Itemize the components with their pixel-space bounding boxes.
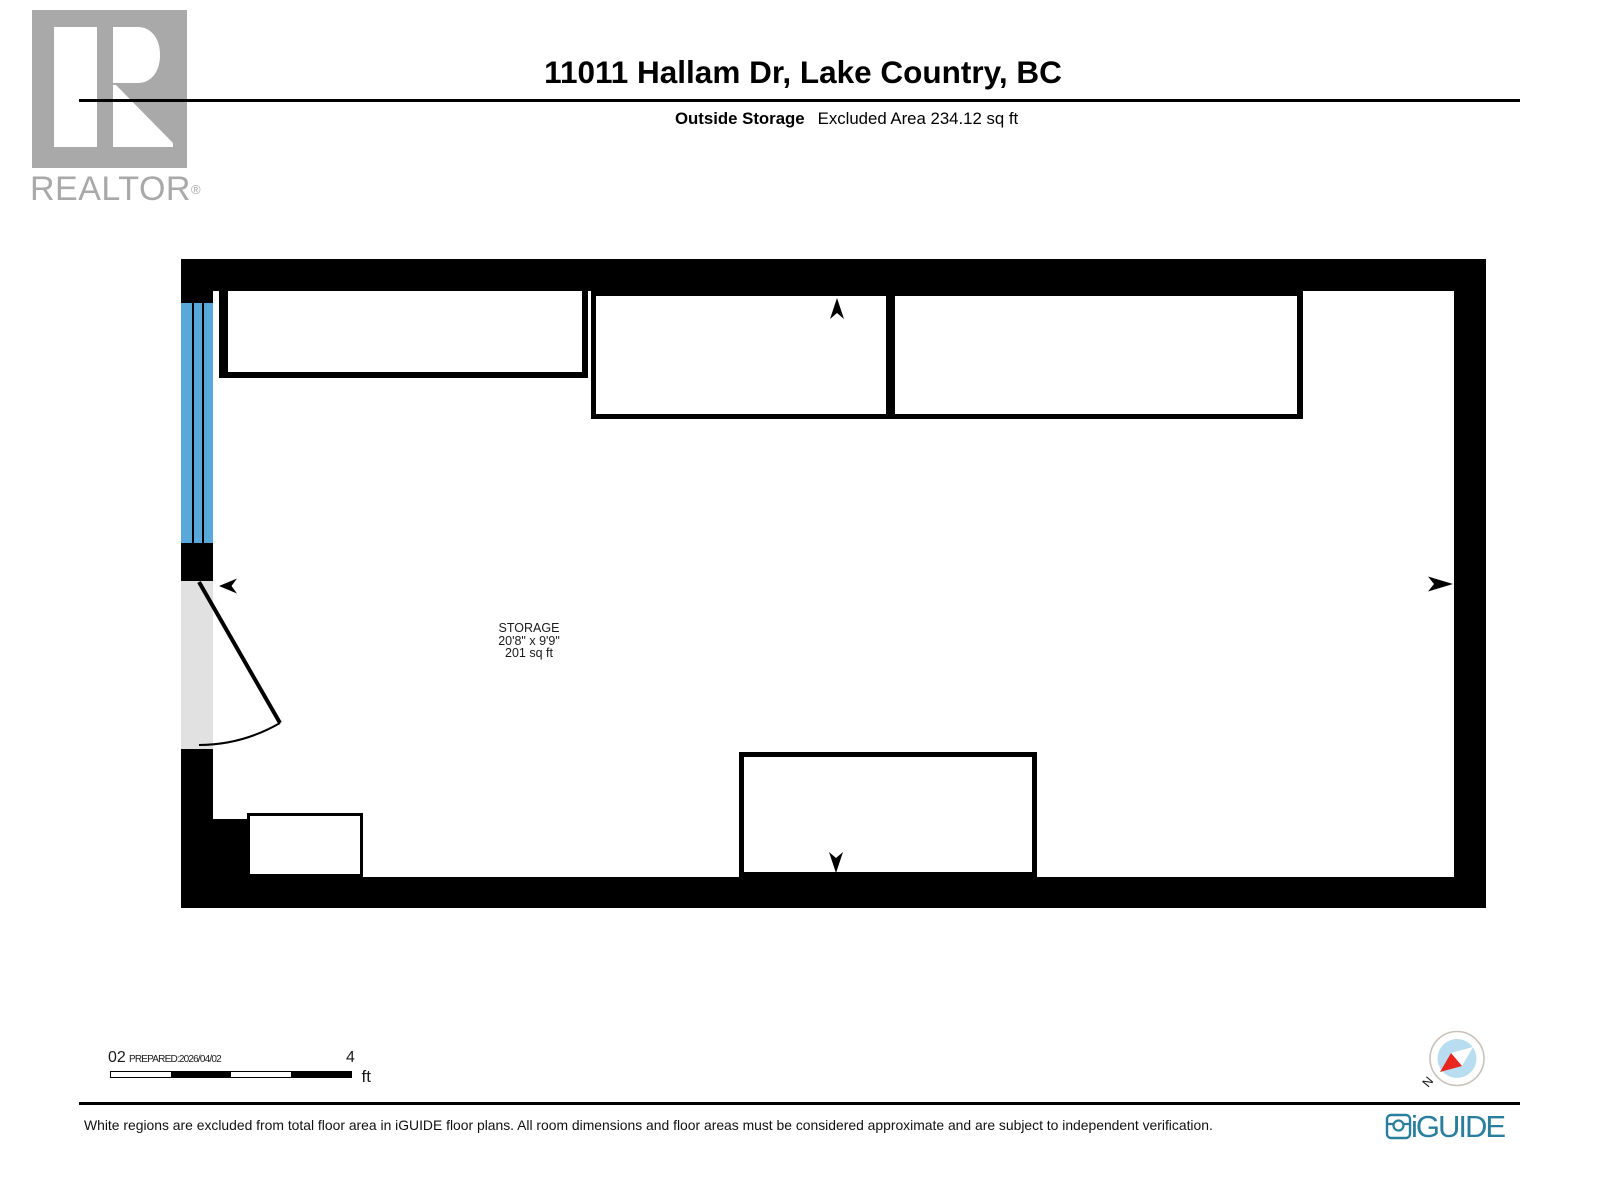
svg-text:N: N [1420,1074,1436,1090]
